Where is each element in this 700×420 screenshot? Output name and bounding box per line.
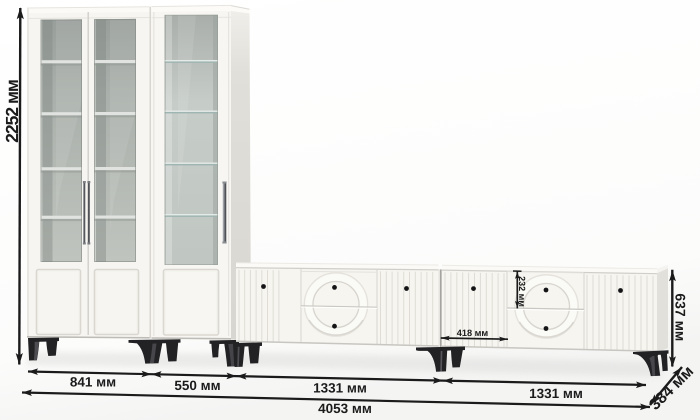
svg-text:1331 мм: 1331 мм — [529, 386, 583, 401]
svg-text:232 мм: 232 мм — [517, 276, 527, 307]
svg-text:1331 мм: 1331 мм — [313, 381, 367, 396]
svg-text:637 мм: 637 мм — [673, 293, 689, 341]
svg-text:418 мм: 418 мм — [457, 328, 489, 338]
svg-text:4053 мм: 4053 мм — [318, 401, 372, 416]
svg-text:841 мм: 841 мм — [70, 375, 116, 390]
svg-text:550 мм: 550 мм — [174, 378, 220, 393]
svg-text:2252 мм: 2252 мм — [2, 80, 22, 143]
